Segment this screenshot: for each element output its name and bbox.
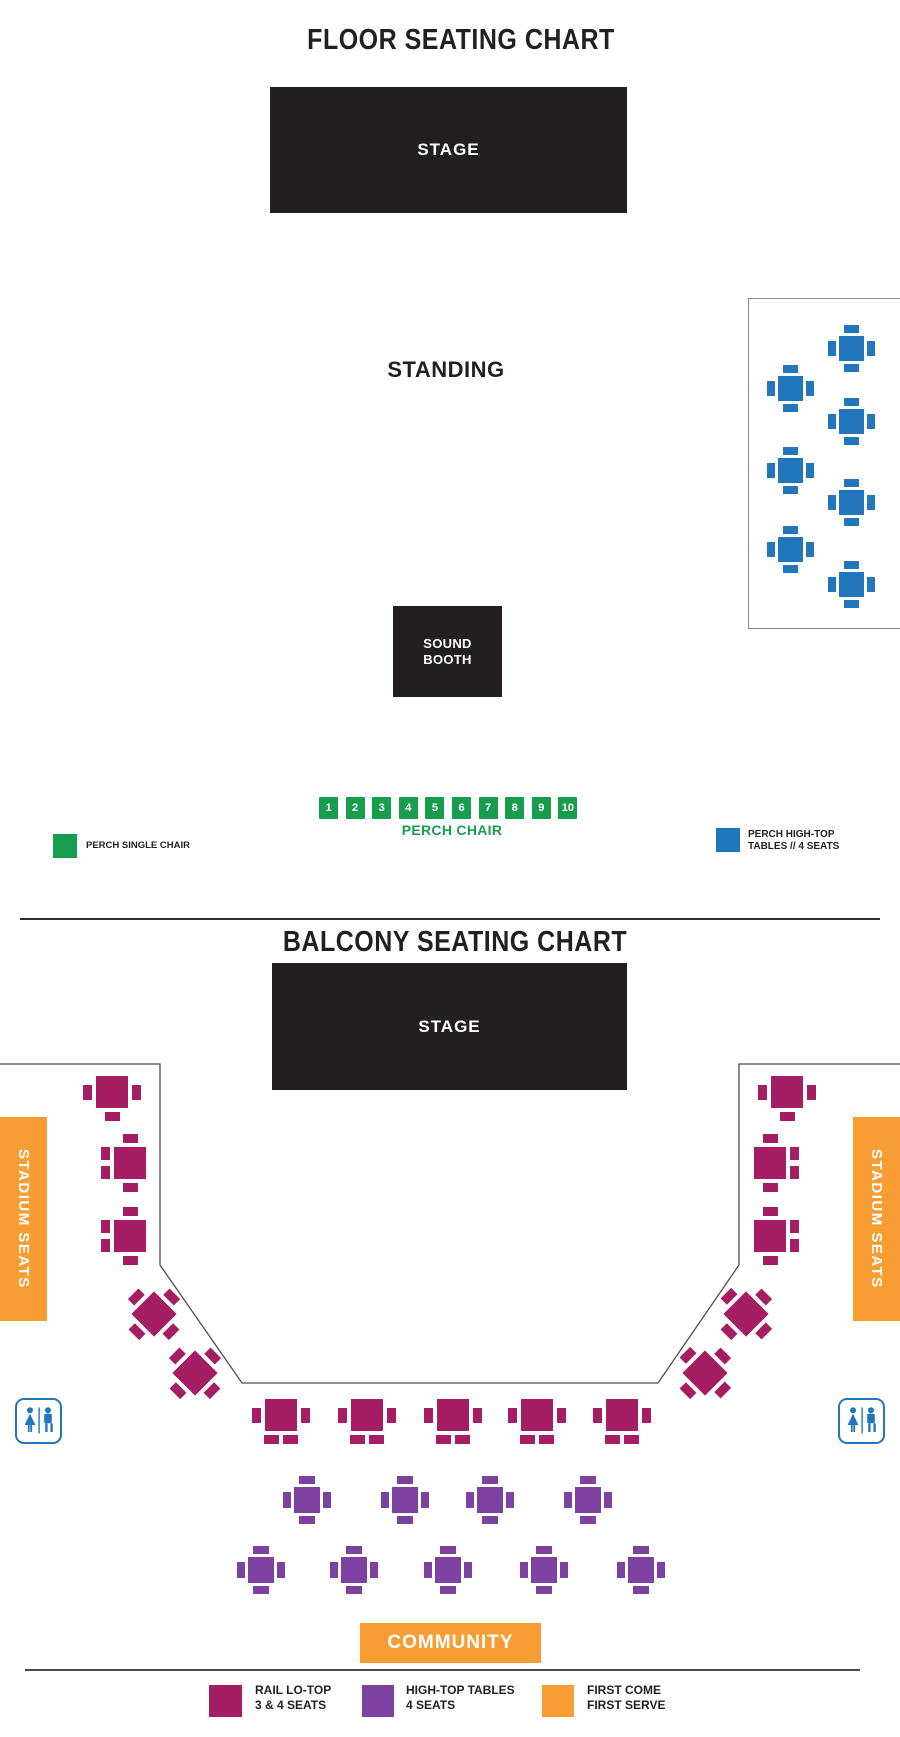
seat <box>763 1256 778 1265</box>
section-divider-top <box>20 918 880 920</box>
seat <box>283 1435 298 1444</box>
perch-chair-1[interactable]: 1 <box>319 797 338 819</box>
seat <box>536 1586 552 1594</box>
table-cluster-magenta-h3[interactable] <box>758 1063 816 1121</box>
seat <box>464 1562 472 1578</box>
seat <box>466 1492 474 1508</box>
seat <box>564 1492 572 1508</box>
table-top <box>778 537 803 562</box>
perch-chair-3[interactable]: 3 <box>372 797 391 819</box>
high-top-tables-label-line2: 4 SEATS <box>406 1698 515 1713</box>
seat <box>440 1546 456 1554</box>
table-cluster-magenta-b4[interactable] <box>252 1386 310 1444</box>
stadium-seats-left: STADIUM SEATS <box>0 1117 47 1321</box>
community-table: COMMUNITY <box>360 1623 541 1663</box>
balcony-stage-label: STAGE <box>418 1017 480 1037</box>
table-cluster-magenta-b4[interactable] <box>508 1386 566 1444</box>
perch-chair-5[interactable]: 5 <box>425 797 444 819</box>
seat <box>506 1492 514 1508</box>
seat <box>323 1492 331 1508</box>
seat <box>783 404 798 412</box>
seat <box>105 1112 120 1121</box>
seat <box>520 1435 535 1444</box>
seat <box>381 1492 389 1508</box>
seat <box>350 1435 365 1444</box>
table-cluster-purple-four[interactable] <box>283 1476 331 1524</box>
table-cluster-magenta-b4[interactable] <box>424 1386 482 1444</box>
seat <box>657 1562 665 1578</box>
seat <box>101 1239 110 1252</box>
table-cluster-blue-four[interactable] <box>767 365 814 412</box>
seat <box>299 1516 315 1524</box>
seat <box>844 561 859 569</box>
seat <box>277 1562 285 1578</box>
table-cluster-magenta-b4[interactable] <box>593 1386 651 1444</box>
section-divider-bottom <box>25 1669 860 1671</box>
seat <box>763 1207 778 1216</box>
table-cluster-blue-four[interactable] <box>828 398 875 445</box>
table-cluster-magenta-v4r[interactable] <box>741 1134 799 1192</box>
table-top <box>265 1399 297 1431</box>
seat <box>580 1516 596 1524</box>
seat <box>844 600 859 608</box>
seat <box>828 414 836 429</box>
seat <box>783 365 798 373</box>
seat <box>806 463 814 478</box>
seat <box>424 1562 432 1578</box>
seat <box>790 1147 799 1160</box>
seat <box>301 1408 310 1423</box>
table-cluster-magenta-v4l[interactable] <box>101 1207 159 1265</box>
seat <box>123 1256 138 1265</box>
perch-chair-2[interactable]: 2 <box>346 797 365 819</box>
seat <box>237 1562 245 1578</box>
seat <box>101 1147 110 1160</box>
seat <box>807 1085 816 1100</box>
seat <box>767 542 775 557</box>
seat <box>436 1435 451 1444</box>
seat <box>605 1435 620 1444</box>
seat <box>828 341 836 356</box>
seat <box>844 518 859 526</box>
table-top <box>771 1076 803 1108</box>
seat <box>844 364 859 372</box>
table-top <box>754 1220 786 1252</box>
restroom-icon-left <box>15 1398 62 1444</box>
seat <box>346 1546 362 1554</box>
table-top <box>839 490 864 515</box>
seat <box>763 1183 778 1192</box>
seat <box>482 1516 498 1524</box>
table-top <box>435 1557 461 1583</box>
table-cluster-blue-four[interactable] <box>828 561 875 608</box>
seat <box>580 1476 596 1484</box>
unisex-restroom-glyph <box>21 1405 57 1437</box>
seat <box>790 1239 799 1252</box>
seat <box>844 479 859 487</box>
stadium-seats-right-label: STADIUM SEATS <box>868 1149 885 1289</box>
table-cluster-blue-four[interactable] <box>767 526 814 573</box>
seat <box>806 381 814 396</box>
floor-chart-title: FLOOR SEATING CHART <box>0 24 900 57</box>
table-cluster-blue-four[interactable] <box>767 447 814 494</box>
seat <box>844 325 859 333</box>
table-top <box>351 1399 383 1431</box>
seat <box>330 1562 338 1578</box>
seat <box>123 1207 138 1216</box>
table-top <box>521 1399 553 1431</box>
table-top <box>839 572 864 597</box>
perch-high-top-label-line1: PERCH HIGH-TOP <box>748 829 839 841</box>
seat <box>560 1562 568 1578</box>
seat <box>123 1183 138 1192</box>
table-cluster-purple-four[interactable] <box>381 1476 429 1524</box>
seat <box>338 1408 347 1423</box>
table-top <box>96 1076 128 1108</box>
first-come-label: FIRST COME FIRST SERVE <box>587 1683 665 1713</box>
table-top <box>839 336 864 361</box>
seat <box>253 1586 269 1594</box>
table-cluster-magenta-b4[interactable] <box>338 1386 396 1444</box>
seat <box>132 1085 141 1100</box>
seat <box>101 1220 110 1233</box>
table-cluster-purple-four[interactable] <box>466 1476 514 1524</box>
perch-high-top-swatch <box>716 828 740 852</box>
perch-chair-row-label: PERCH CHAIR <box>152 822 752 838</box>
balcony-chart-title: BALCONY SEATING CHART <box>0 926 900 959</box>
first-come-swatch <box>542 1685 574 1717</box>
table-top <box>778 458 803 483</box>
seat <box>867 341 875 356</box>
seat <box>767 381 775 396</box>
table-cluster-magenta-v4r[interactable] <box>741 1207 799 1265</box>
seat <box>536 1546 552 1554</box>
perch-chair-10[interactable]: 10 <box>558 797 577 819</box>
seat <box>473 1408 482 1423</box>
seat <box>828 495 836 510</box>
seat <box>633 1586 649 1594</box>
perch-chair-4[interactable]: 4 <box>399 797 418 819</box>
seat <box>346 1586 362 1594</box>
table-top <box>628 1557 654 1583</box>
table-top <box>248 1557 274 1583</box>
seat <box>101 1166 110 1179</box>
seat <box>867 414 875 429</box>
seat <box>299 1476 315 1484</box>
high-top-tables-label: HIGH-TOP TABLES 4 SEATS <box>406 1683 515 1713</box>
rail-lo-top-swatch <box>209 1685 242 1717</box>
seat <box>455 1435 470 1444</box>
first-come-label-line1: FIRST COME <box>587 1683 665 1698</box>
high-top-tables-swatch <box>362 1685 394 1717</box>
seat <box>783 447 798 455</box>
seat <box>421 1492 429 1508</box>
table-cluster-magenta-h3[interactable] <box>83 1063 141 1121</box>
perch-chair-7[interactable]: 7 <box>479 797 498 819</box>
seat <box>783 565 798 573</box>
seat <box>370 1562 378 1578</box>
seat <box>844 398 859 406</box>
table-top <box>114 1147 146 1179</box>
seat <box>714 1382 731 1399</box>
table-top <box>341 1557 367 1583</box>
seat <box>790 1220 799 1233</box>
perch-chair-8[interactable]: 8 <box>505 797 524 819</box>
stadium-seats-right: STADIUM SEATS <box>853 1117 900 1321</box>
rail-lo-top-label-line1: RAIL LO-TOP <box>255 1683 331 1698</box>
seat <box>252 1408 261 1423</box>
table-cluster-blue-four[interactable] <box>828 325 875 372</box>
seat <box>763 1134 778 1143</box>
first-come-label-line2: FIRST SERVE <box>587 1698 665 1713</box>
restroom-icon-right <box>838 1398 885 1444</box>
perch-single-chair-label: PERCH SINGLE CHAIR <box>86 840 190 852</box>
table-cluster-purple-four[interactable] <box>520 1546 568 1594</box>
table-top <box>839 409 864 434</box>
seat <box>790 1166 799 1179</box>
table-top <box>754 1147 786 1179</box>
seating-chart-page: FLOOR SEATING CHART STAGE STANDING SOUND… <box>0 0 900 1737</box>
seat <box>482 1476 498 1484</box>
table-top <box>477 1487 503 1513</box>
table-top <box>114 1220 146 1252</box>
high-top-tables-label-line1: HIGH-TOP TABLES <box>406 1683 515 1698</box>
sound-booth: SOUND BOOTH <box>393 606 502 697</box>
table-top <box>437 1399 469 1431</box>
seat <box>123 1134 138 1143</box>
seat <box>253 1546 269 1554</box>
seat <box>397 1516 413 1524</box>
seat <box>83 1085 92 1100</box>
community-label: COMMUNITY <box>387 1632 513 1654</box>
table-top <box>606 1399 638 1431</box>
rail-lo-top-label: RAIL LO-TOP 3 & 4 SEATS <box>255 1683 331 1713</box>
seat <box>440 1586 456 1594</box>
unisex-restroom-glyph <box>844 1405 880 1437</box>
table-cluster-magenta-v4l[interactable] <box>101 1134 159 1192</box>
perch-single-chair-swatch <box>53 834 77 858</box>
seat <box>633 1546 649 1554</box>
seat <box>397 1476 413 1484</box>
seat <box>387 1408 396 1423</box>
perch-chair-6[interactable]: 6 <box>452 797 471 819</box>
seat <box>520 1562 528 1578</box>
table-cluster-purple-four[interactable] <box>564 1476 612 1524</box>
standing-area-label: STANDING <box>146 357 746 383</box>
table-cluster-purple-four[interactable] <box>617 1546 665 1594</box>
table-top <box>294 1487 320 1513</box>
sound-booth-line1: SOUND <box>423 636 471 652</box>
seat <box>767 463 775 478</box>
table-top <box>392 1487 418 1513</box>
seat <box>642 1408 651 1423</box>
seat <box>369 1435 384 1444</box>
seat <box>539 1435 554 1444</box>
floor-stage: STAGE <box>270 87 627 213</box>
perch-high-top-label-line2: TABLES // 4 SEATS <box>748 841 839 853</box>
seat <box>624 1435 639 1444</box>
seat <box>617 1562 625 1578</box>
table-cluster-purple-four[interactable] <box>237 1546 285 1594</box>
table-cluster-purple-four[interactable] <box>424 1546 472 1594</box>
seat <box>283 1492 291 1508</box>
seat <box>424 1408 433 1423</box>
seat <box>828 577 836 592</box>
seat <box>264 1435 279 1444</box>
perch-high-top-label: PERCH HIGH-TOP TABLES // 4 SEATS <box>748 829 839 853</box>
sound-booth-line2: BOOTH <box>423 652 471 668</box>
seat <box>780 1112 795 1121</box>
seat <box>508 1408 517 1423</box>
seat <box>604 1492 612 1508</box>
table-cluster-purple-four[interactable] <box>330 1546 378 1594</box>
floor-stage-label: STAGE <box>417 140 479 160</box>
table-cluster-blue-four[interactable] <box>828 479 875 526</box>
rail-lo-top-label-line2: 3 & 4 SEATS <box>255 1698 331 1713</box>
seat <box>593 1408 602 1423</box>
seat <box>783 526 798 534</box>
stadium-seats-left-label: STADIUM SEATS <box>15 1149 32 1289</box>
seat <box>204 1382 221 1399</box>
table-top <box>778 376 803 401</box>
table-top <box>531 1557 557 1583</box>
seat <box>806 542 814 557</box>
seat <box>867 495 875 510</box>
seat <box>867 577 875 592</box>
seat <box>844 437 859 445</box>
table-top <box>575 1487 601 1513</box>
seat <box>783 486 798 494</box>
seat <box>758 1085 767 1100</box>
perch-chair-9[interactable]: 9 <box>532 797 551 819</box>
seat <box>557 1408 566 1423</box>
